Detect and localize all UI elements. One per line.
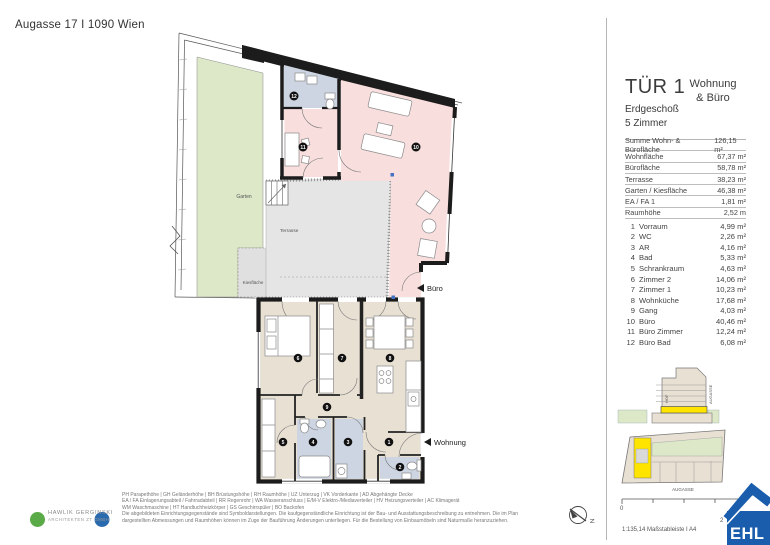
svg-text:11: 11 — [300, 145, 306, 151]
room-name: Büro Bad — [639, 338, 720, 347]
scale-zero: 0 — [620, 506, 624, 512]
summary-value: 67,37 m² — [717, 152, 746, 161]
area-summary-table: Summe Wohn- & Bürofläche126,15 m² Wohnfl… — [625, 139, 746, 219]
summary-value: 1,81 m² — [721, 197, 746, 206]
room-name: Zimmer 2 — [639, 275, 716, 284]
garden-label: Garten — [236, 194, 252, 200]
summary-label: Terrasse — [625, 175, 653, 184]
summary-value: 46,38 m² — [717, 186, 746, 195]
legend-line: dargestellten Abmessungen und Raumhöhen … — [122, 518, 540, 524]
room-name: WC — [639, 232, 720, 241]
svg-text:5: 5 — [282, 440, 285, 446]
stairs — [266, 181, 288, 205]
room-area: 5,33 m² — [720, 253, 746, 262]
room-num: 6 — [625, 275, 635, 284]
gravel-label: Kiesfläche — [243, 280, 264, 285]
room-name: Büro Zimmer — [639, 327, 716, 336]
scale-end: 2 — [720, 518, 724, 524]
summary-row: Raumhöhe2,52 m — [625, 208, 746, 219]
summary-row: Bürofläche58,78 m² — [625, 163, 746, 174]
unit-room-count: 5 Zimmer — [625, 118, 667, 129]
room-area: 14,06 m² — [716, 275, 746, 284]
site-street-label: AUGASSE — [672, 487, 694, 492]
room-row: 10Büro40,46 m² — [625, 316, 746, 327]
room-name: Gang — [639, 306, 720, 315]
svg-text:7: 7 — [341, 356, 344, 362]
svg-text:9: 9 — [326, 405, 329, 411]
room-num: 4 — [625, 253, 635, 262]
room-row: 4Bad5,33 m² — [625, 253, 746, 264]
legend-line: Die abgebildeten Einrichtungsgegenstände… — [122, 511, 540, 517]
summary-row: Terrasse38,23 m² — [625, 174, 746, 185]
room-num: 3 — [625, 243, 635, 252]
summary-label: Garten / Kiesfläche — [625, 186, 687, 195]
room-num: 1 — [625, 222, 635, 231]
room-name: Zimmer 1 — [639, 285, 716, 294]
room-row: 9Gang4,03 m² — [625, 305, 746, 316]
room-name: Vorraum — [639, 222, 720, 231]
room-area: 12,24 m² — [716, 327, 746, 336]
room-area: 4,63 m² — [720, 264, 746, 273]
room-num: 8 — [625, 296, 635, 305]
room-area: 4,99 m² — [720, 222, 746, 231]
room-name: Bad — [639, 253, 720, 262]
summary-row: EA / FA 11,81 m² — [625, 196, 746, 207]
section-hof-label: HOF — [664, 394, 669, 403]
unit-type: Wohnung & Büro — [684, 78, 742, 105]
room-area: 10,23 m² — [716, 285, 746, 294]
architect-subtitle: ARCHITEKTEN ZT GMBH — [48, 517, 113, 524]
room-area: 6,08 m² — [720, 338, 746, 347]
room-num: 12 — [625, 338, 635, 347]
scale-caption: 1:135,14 Maßstableiste I A4 — [622, 527, 696, 533]
room-num: 7 — [625, 285, 635, 294]
summary-row: Summe Wohn- & Bürofläche126,15 m² — [625, 140, 746, 151]
floorplan-sheet: { "address": "Augasse 17 I 1090 Wien", "… — [0, 0, 770, 545]
architect-logo-text: HAWLIK GERGINSKI ARCHITEKTEN ZT GMBH — [48, 510, 113, 523]
room-num: 10 — [625, 317, 635, 326]
room-num: 11 — [625, 327, 635, 336]
summary-label: Bürofläche — [625, 163, 660, 172]
room-name: AR — [639, 243, 720, 252]
room-area: 4,03 m² — [720, 306, 746, 315]
summary-label: Wohnfläche — [625, 152, 663, 161]
room-area: 17,68 m² — [716, 296, 746, 305]
room-num: 9 — [625, 306, 635, 315]
room-row: 8Wohnküche17,68 m² — [625, 295, 746, 306]
svg-text:2: 2 — [399, 465, 402, 471]
room-list: 1Vorraum4,99 m² 2WC2,26 m² 3AR4,16 m² 4B… — [625, 221, 746, 348]
summary-label: Raumhöhe — [625, 208, 661, 217]
room-row: 11Büro Zimmer12,24 m² — [625, 326, 746, 337]
section-highlight-unit — [661, 407, 707, 414]
unit-type-line2: & Büro — [684, 92, 742, 106]
svg-text:N: N — [588, 519, 594, 524]
svg-text:3: 3 — [347, 440, 350, 446]
site-diagram: AUGASSE — [622, 430, 725, 492]
room-name: Büro — [639, 317, 716, 326]
room-area: 2,26 m² — [720, 232, 746, 241]
terrace-label: Terrasse — [280, 228, 299, 234]
summary-value: 2,52 m — [724, 208, 746, 217]
room-row: 1Vorraum4,99 m² — [625, 221, 746, 232]
svg-text:4: 4 — [312, 440, 315, 446]
room-area: 40,46 m² — [716, 317, 746, 326]
summary-value: 38,23 m² — [717, 175, 746, 184]
sheet-address: Augasse 17 I 1090 Wien — [15, 19, 145, 31]
svg-text:10: 10 — [413, 145, 419, 151]
water-connection-icon — [392, 296, 396, 300]
architect-logo-green-icon — [30, 512, 45, 527]
unit-floor: Erdgeschoß — [625, 104, 679, 115]
room-row: 5Schrankraum4,63 m² — [625, 263, 746, 274]
svg-text:12: 12 — [291, 94, 297, 100]
architect-name: HAWLIK GERGINSKI — [48, 510, 113, 517]
apartment-unit — [256, 297, 426, 483]
unit-title: TÜR 1 — [625, 76, 685, 99]
section-street-label: AUGASSE — [708, 384, 713, 404]
legend-block: PH Parapethöhe | GH Geländerhöhe | BH Br… — [122, 492, 540, 524]
room-num: 5 — [625, 264, 635, 273]
svg-text:EHL: EHL — [730, 525, 765, 543]
gravel-area — [238, 248, 268, 297]
summary-row: Garten / Kiesfläche46,38 m² — [625, 185, 746, 196]
panel-divider — [606, 18, 607, 540]
svg-text:8: 8 — [389, 356, 392, 362]
room-row: 2WC2,26 m² — [625, 232, 746, 243]
room-name: Wohnküche — [639, 296, 716, 305]
room-row: 3AR4,16 m² — [625, 242, 746, 253]
svg-text:1: 1 — [388, 440, 391, 446]
room-row: 12Büro Bad6,08 m² — [625, 337, 746, 348]
apartment-entry-label: Wohnung — [434, 438, 466, 447]
terrace-area: Terrasse — [266, 178, 391, 298]
room-num: 2 — [625, 232, 635, 241]
north-arrow-icon: N — [570, 507, 595, 524]
svg-text:6: 6 — [297, 356, 300, 362]
section-diagram: HOF AUGASSE — [618, 368, 719, 423]
summary-label: EA / FA 1 — [625, 197, 655, 206]
office-entry-label: Büro — [427, 284, 443, 293]
summary-value: 58,78 m² — [717, 163, 746, 172]
ehl-logo: EHL — [727, 489, 770, 545]
room-name: Schrankraum — [639, 264, 720, 273]
room-row: 6Zimmer 214,06 m² — [625, 274, 746, 285]
room-area: 4,16 m² — [720, 243, 746, 252]
unit-type-line1: Wohnung — [684, 78, 742, 92]
room-row: 7Zimmer 110,23 m² — [625, 284, 746, 295]
water-connection-icon — [391, 173, 395, 177]
garden-area: Garten Kiesfläche — [197, 57, 268, 297]
